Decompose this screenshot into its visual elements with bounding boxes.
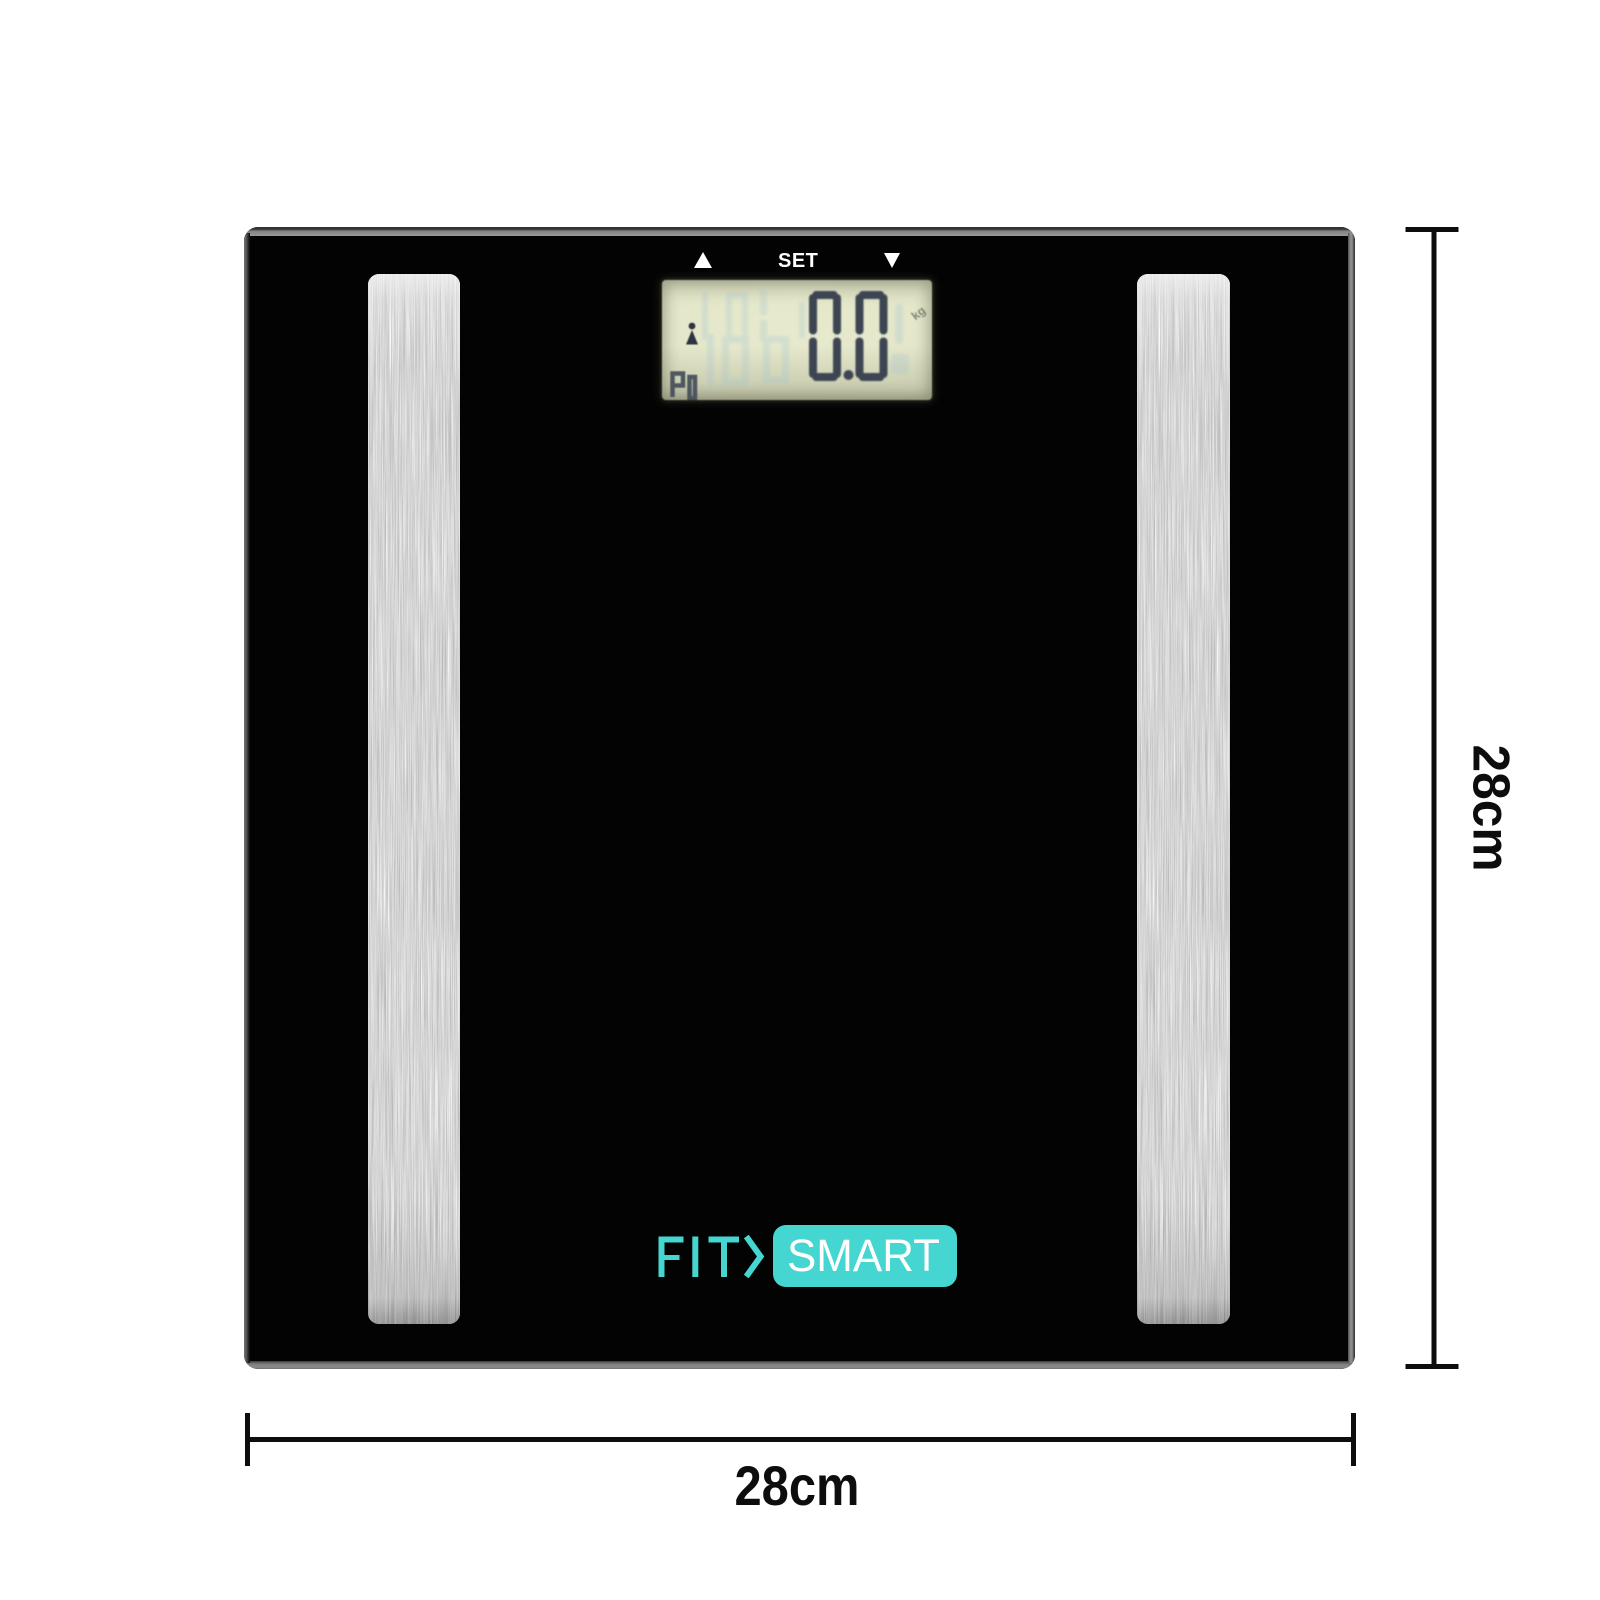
svg-text:28cm: 28cm [1461, 745, 1519, 872]
svg-text:28cm: 28cm [735, 1454, 860, 1517]
